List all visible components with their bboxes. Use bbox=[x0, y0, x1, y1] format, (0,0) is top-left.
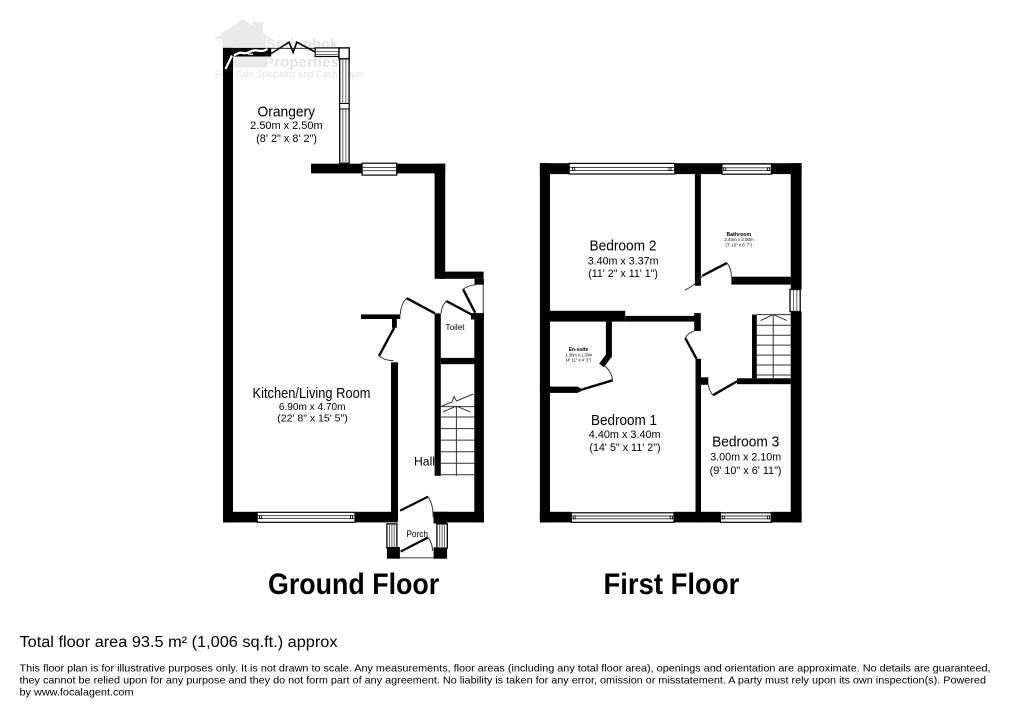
svg-text:First Floor: First Floor bbox=[604, 568, 740, 601]
svg-text:(22' 8" x 15' 5"): (22' 8" x 15' 5") bbox=[277, 413, 347, 425]
svg-text:Kitchen/Living Room: Kitchen/Living Room bbox=[253, 386, 371, 402]
svg-text:6.90m x 4.70m: 6.90m x 4.70m bbox=[279, 401, 346, 413]
svg-text:Bedroom 3: Bedroom 3 bbox=[712, 435, 779, 451]
svg-text:En-suite: En-suite bbox=[569, 347, 589, 353]
svg-text:Bedroom 2: Bedroom 2 bbox=[590, 239, 657, 255]
svg-text:(14' 5" x 11' 2"): (14' 5" x 11' 2") bbox=[589, 442, 660, 454]
svg-text:3.00m x 2.10m: 3.00m x 2.10m bbox=[710, 451, 781, 463]
svg-text:This floor plan is for illustr: This floor plan is for illustrative purp… bbox=[20, 664, 991, 675]
svg-text:(9' 10" x 6' 11"): (9' 10" x 6' 11") bbox=[710, 465, 782, 477]
svg-text:Orangery: Orangery bbox=[258, 105, 316, 121]
svg-text:4.40m x 3.40m: 4.40m x 3.40m bbox=[589, 429, 661, 441]
svg-text:(7' 10" x 6' 7"): (7' 10" x 6' 7") bbox=[726, 242, 753, 248]
svg-text:Toilet: Toilet bbox=[446, 322, 465, 332]
svg-text:3.40m x 3.37m: 3.40m x 3.37m bbox=[588, 255, 659, 267]
svg-text:Total floor area 93.5 m² (1,00: Total floor area 93.5 m² (1,006 sq.ft.) … bbox=[20, 634, 338, 651]
svg-text:they cannot be relied upon for: they cannot be relied upon for any purpo… bbox=[20, 676, 987, 687]
svg-text:by www.focalagent.com: by www.focalagent.com bbox=[20, 687, 134, 698]
svg-text:Hall: Hall bbox=[414, 457, 435, 469]
svg-text:2.40m x 2.00m: 2.40m x 2.00m bbox=[724, 237, 753, 243]
svg-text:Bathroom: Bathroom bbox=[727, 232, 752, 238]
svg-text:Bedroom 1: Bedroom 1 bbox=[591, 413, 657, 429]
svg-text:(4' 11" x 4' 3"): (4' 11" x 4' 3") bbox=[566, 357, 592, 363]
svg-text:Porch: Porch bbox=[406, 529, 428, 539]
svg-text:(11' 2" x 11' 1"): (11' 2" x 11' 1") bbox=[588, 268, 658, 280]
svg-text:Ground Floor: Ground Floor bbox=[268, 568, 439, 601]
svg-text:2.50m x 2.50m: 2.50m x 2.50m bbox=[250, 120, 322, 132]
svg-text:(8' 2" x 8' 2"): (8' 2" x 8' 2") bbox=[256, 133, 317, 145]
